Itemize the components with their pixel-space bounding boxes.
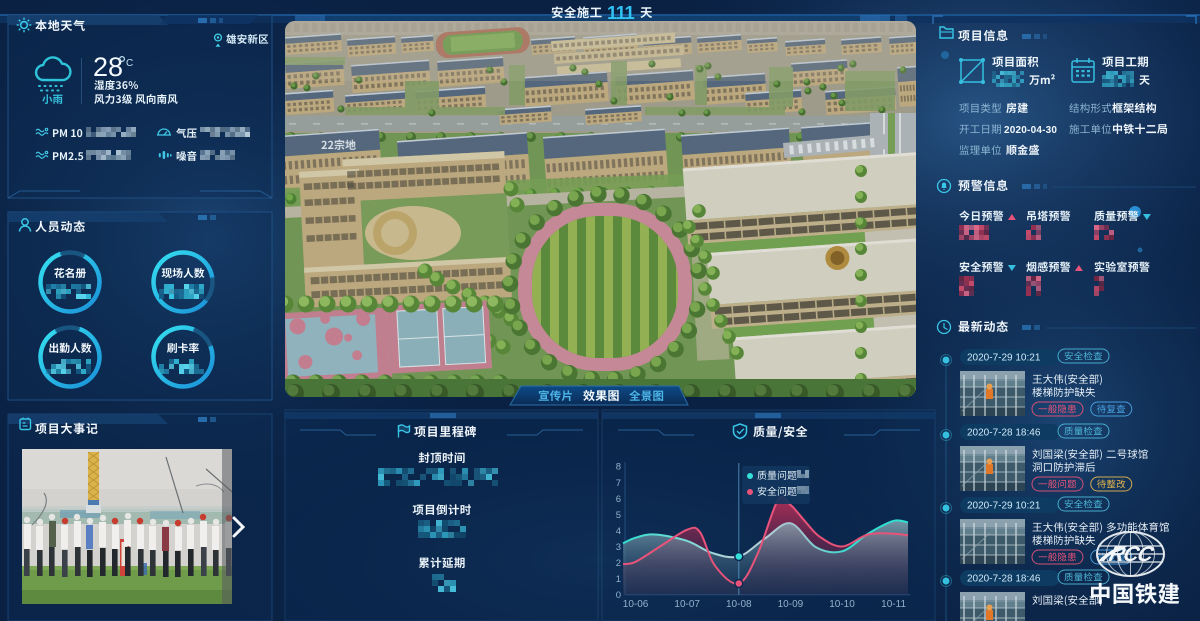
- svg-text:10-08: 10-08: [726, 599, 752, 610]
- svg-text:10-06: 10-06: [623, 599, 649, 610]
- svg-text:RCC: RCC: [1107, 542, 1157, 566]
- svg-text:4: 4: [616, 526, 621, 537]
- svg-text:2020-7-28 18:46: 2020-7-28 18:46: [967, 428, 1041, 439]
- svg-text:1: 1: [616, 574, 621, 585]
- svg-text:2020-04-30: 2020-04-30: [1004, 125, 1057, 136]
- svg-text:8: 8: [616, 462, 621, 473]
- svg-text:10-09: 10-09: [778, 599, 804, 610]
- svg-text:10-07: 10-07: [674, 599, 700, 610]
- svg-text:5: 5: [616, 510, 621, 521]
- svg-text:6: 6: [616, 494, 621, 505]
- svg-text:2020-7-29 10:21: 2020-7-29 10:21: [967, 501, 1041, 512]
- svg-text:2020-7-29 10:21: 2020-7-29 10:21: [967, 353, 1041, 364]
- svg-text:2: 2: [616, 558, 621, 569]
- svg-text:C: C: [126, 58, 133, 69]
- svg-text:3: 3: [616, 542, 621, 553]
- svg-text:10-10: 10-10: [829, 599, 855, 610]
- svg-text:0: 0: [616, 590, 621, 601]
- svg-text:10-11: 10-11: [881, 599, 906, 610]
- svg-text:28: 28: [93, 52, 123, 82]
- svg-text:111: 111: [607, 2, 635, 23]
- svg-text:7: 7: [616, 478, 621, 489]
- svg-text:2020-7-28 18:46: 2020-7-28 18:46: [967, 574, 1041, 585]
